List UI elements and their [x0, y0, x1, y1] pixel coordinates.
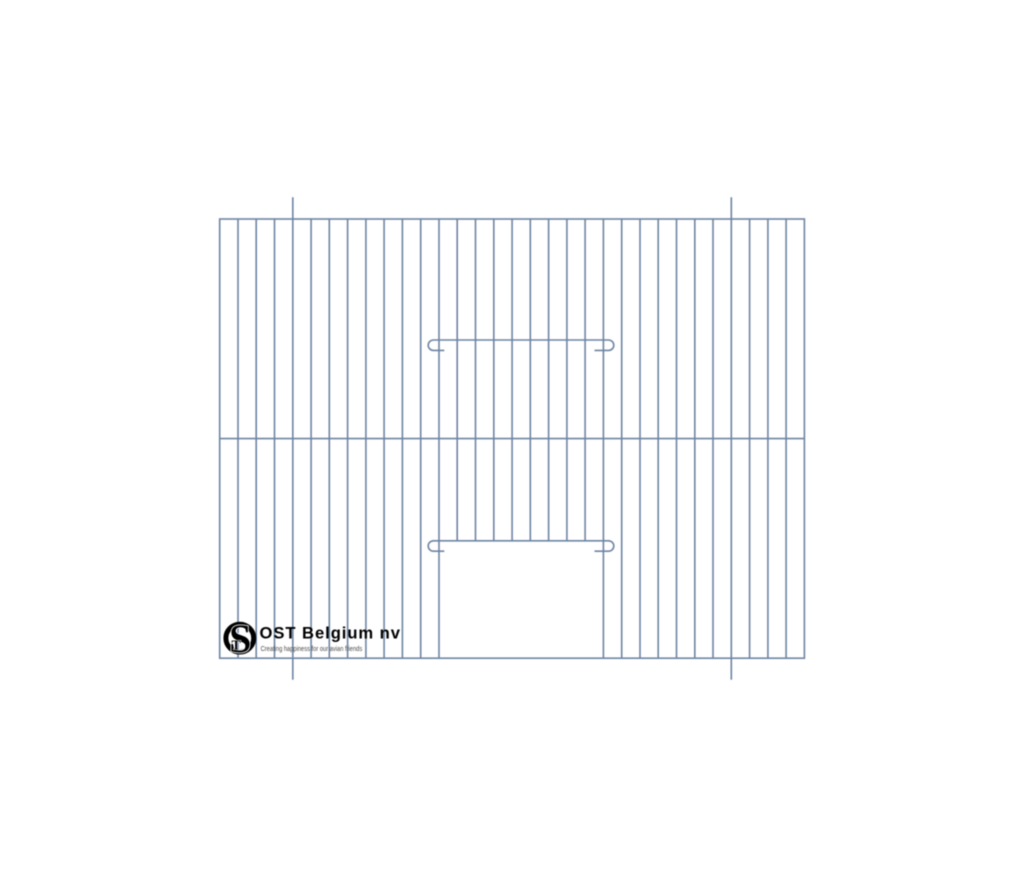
svg-text:T: T	[232, 639, 242, 654]
svg-text:Creating happiness for our avi: Creating happiness for our avian friends	[261, 644, 363, 653]
svg-text:OST Belgium nv: OST Belgium nv	[260, 624, 401, 643]
